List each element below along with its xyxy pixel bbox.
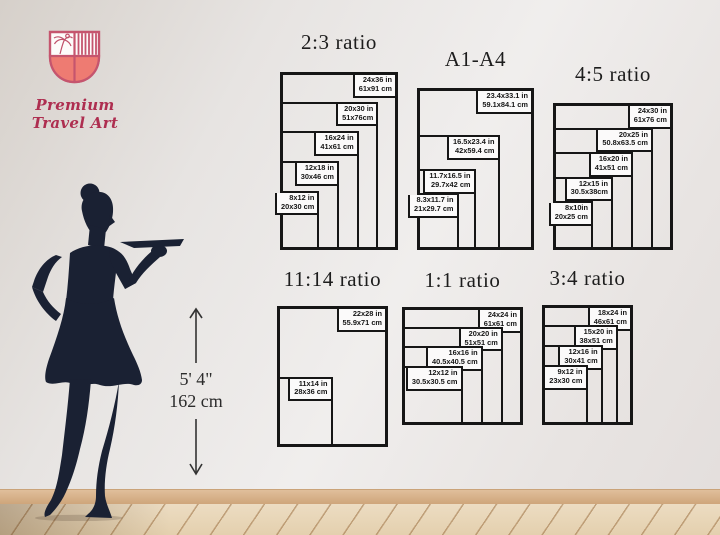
size-label: 12x12 in30.5x30.5 cm [406,368,461,391]
size-cm: 23x30 cm [549,377,582,386]
brand-shield-icon [46,29,103,86]
size-label: 20x30 in51x76cm [336,104,376,127]
size-label: 8.3x11.7 in21x29.7 cm [408,195,456,218]
size-cm: 30x46 cm [301,173,334,182]
size-cm: 28x36 cm [294,388,327,397]
size-label: 11x14 in28x36 cm [288,379,330,402]
size-cm: 61x76 cm [634,116,667,125]
size-cm: 41x51 cm [595,164,628,173]
size-chart: 24x36 in61x91 cm20x30 in51x76cm16x24 in4… [280,72,398,250]
size-chart: 22x28 in55.9x71 cm11x14 in28x36 cm [277,306,388,447]
size-cm: 21x29.7 cm [414,205,453,214]
size-chart: 24x30 in61x76 cm20x25 in50.8x63.5 cm16x2… [553,103,673,250]
size-cm: 51x76cm [342,114,373,123]
size-label: 20x25 in50.8x63.5 cm [596,130,651,153]
size-rect: 9x12 in23x30 cm [542,365,588,425]
size-cm: 30.5x30.5 cm [412,378,458,387]
size-cm: 20x25 cm [555,213,588,222]
size-label: 22x28 in55.9x71 cm [337,309,385,332]
size-label: 9x12 in23x30 cm [543,367,585,390]
size-guide-poster: Premium Travel Art [0,0,720,535]
size-label: 8x12 in20x30 cm [275,193,317,216]
size-label: 16x24 in41x61 cm [314,133,356,156]
size-cm: 59.1x84.1 cm [482,101,528,110]
chart-title: 4:5 ratio [575,62,651,87]
size-rect: 8.3x11.7 in21x29.7 cm [417,193,459,250]
size-cm: 30.5x38cm [571,188,608,197]
size-cm: 55.9x71 cm [343,319,382,328]
size-cm: 29.7x42 cm [429,181,470,190]
size-cm: 50.8x63.5 cm [602,139,648,148]
size-rect: 12x12 in30.5x30.5 cm [402,366,463,425]
woman-silhouette [24,165,190,521]
chart-title: 11:14 ratio [284,267,381,292]
size-label: 11.7x16.5 in29.7x42 cm [423,171,473,194]
size-label: 16.5x23.4 in42x59.4 cm [447,137,498,160]
size-rect: 11x14 in28x36 cm [277,377,333,448]
size-chart: 24x24 in61x61 cm20x20 in51x51 cm16x16 in… [402,307,523,425]
size-chart: 23.4x33.1 in59.1x84.1 cm16.5x23.4 in42x5… [417,88,534,250]
chart-title: 1:1 ratio [425,268,501,293]
size-label: 24x30 in61x76 cm [628,106,670,129]
size-cm: 20x30 cm [281,203,314,212]
size-label: 12x15 in30.5x38cm [565,179,611,202]
size-chart: 18x24 in46x61 cm15x20 in38x51 cm12x16 in… [542,305,633,425]
size-label: 24x36 in61x91 cm [353,75,395,98]
size-label: 23.4x33.1 in59.1x84.1 cm [476,91,531,114]
size-label: 16x20 in41x51 cm [589,154,631,177]
height-cm: 162 cm [156,391,236,412]
size-cm: 42x59.4 cm [453,147,495,156]
height-feet: 5' 4" [156,369,236,390]
brand-name: Premium Travel Art [14,96,136,132]
size-rect: 8x10in20x25 cm [553,201,593,250]
size-cm: 61x91 cm [359,85,392,94]
size-label: 8x10in20x25 cm [549,203,591,226]
size-rect: 8x12 in20x30 cm [280,191,319,250]
size-label: 12x18 in30x46 cm [295,163,337,186]
chart-title: 2:3 ratio [301,30,377,55]
size-cm: 41x61 cm [320,143,353,152]
chart-title: 3:4 ratio [550,266,626,291]
chart-title: A1-A4 [445,47,506,72]
